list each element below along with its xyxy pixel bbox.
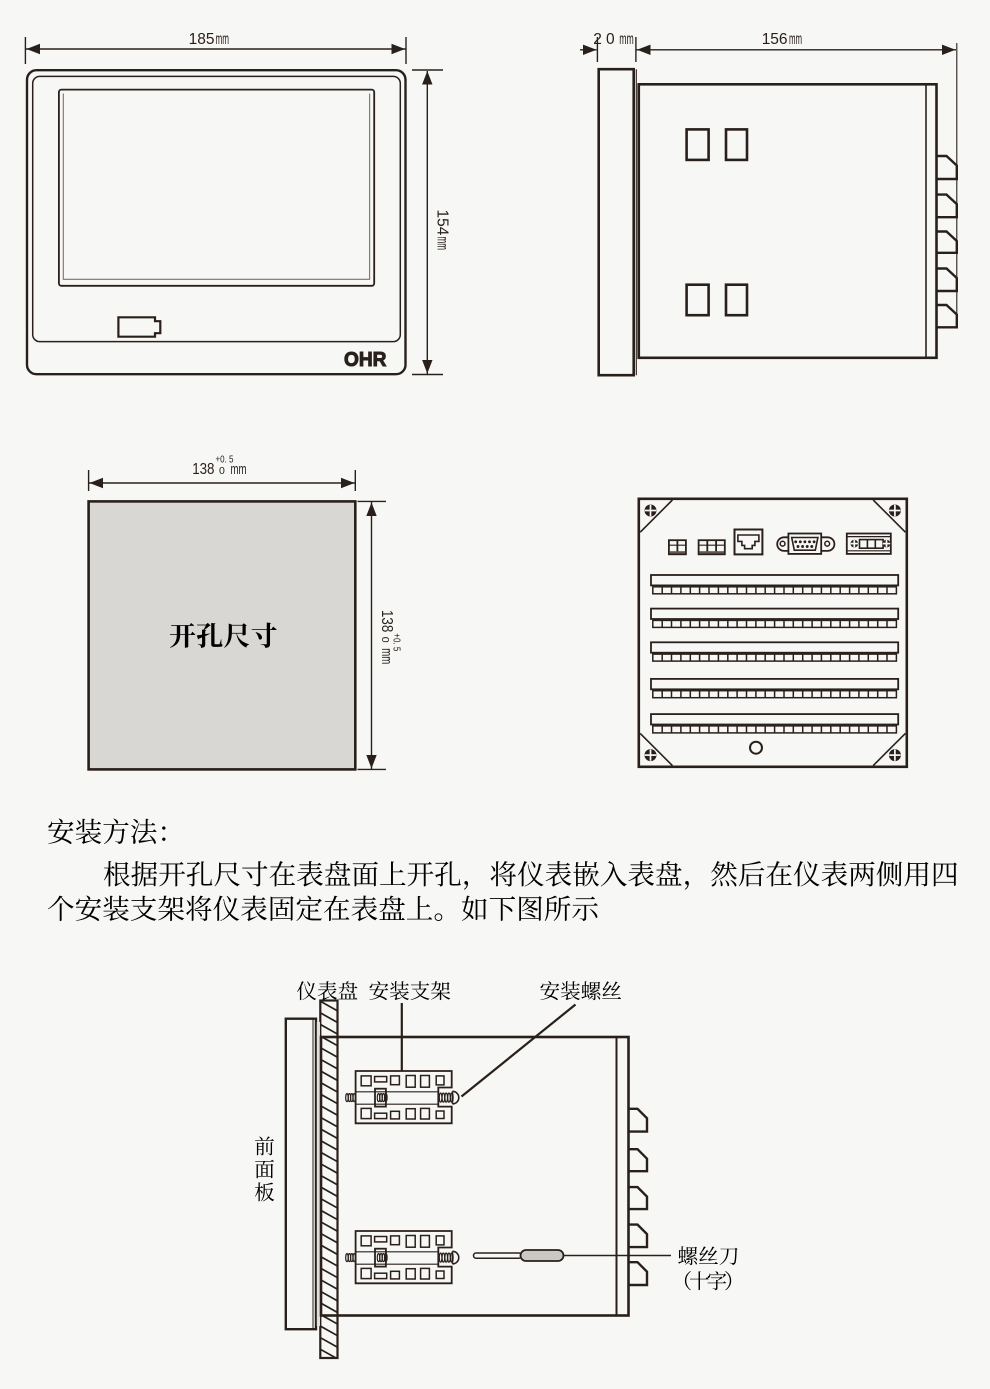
svg-text:0: 0 <box>219 465 225 477</box>
svg-text:154: 154 <box>433 210 450 236</box>
svg-text:156: 156 <box>762 31 788 48</box>
svg-text:mm: mm <box>231 461 247 478</box>
svg-text:mm: mm <box>378 648 395 664</box>
svg-text:20: 20 <box>593 31 619 48</box>
svg-text:0: 0 <box>379 637 391 643</box>
svg-text:mm: mm <box>619 31 634 48</box>
svg-text:mm: mm <box>433 237 450 251</box>
svg-text:mm: mm <box>789 31 802 48</box>
svg-text:OHR: OHR <box>344 349 387 371</box>
svg-text:mm: mm <box>216 31 230 48</box>
svg-text:185: 185 <box>189 31 215 48</box>
svg-text:138: 138 <box>192 461 214 478</box>
svg-text:138: 138 <box>378 610 395 632</box>
